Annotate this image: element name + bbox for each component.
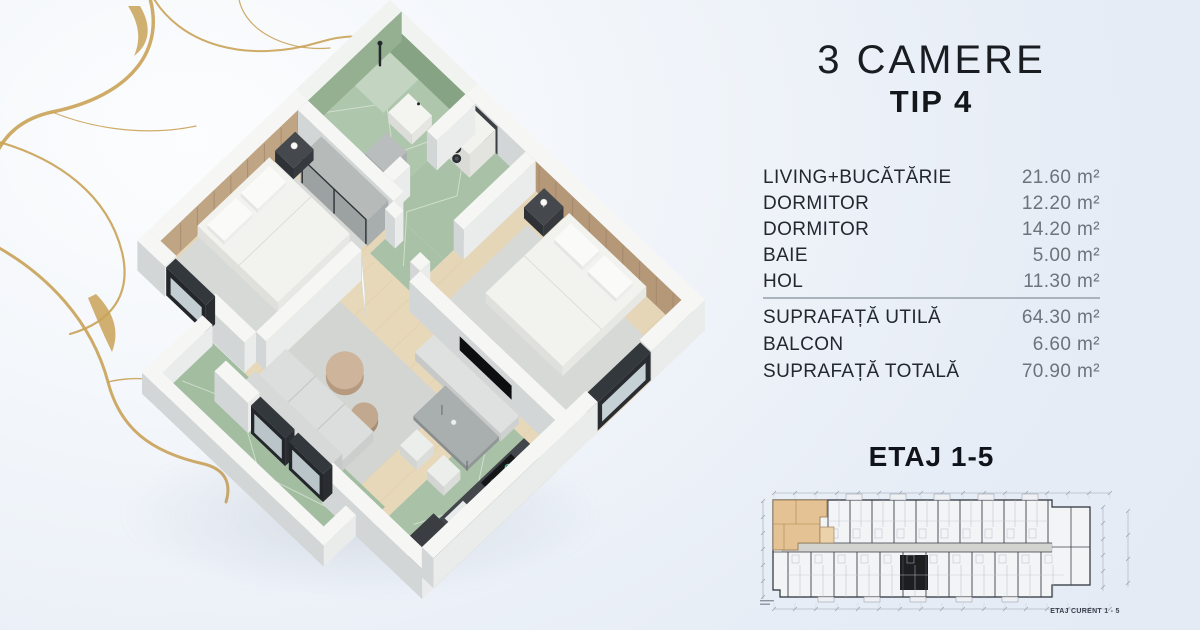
room-row: DORMITOR12.20 m² [763, 193, 1100, 219]
room-area-value: 11.30 m² [1023, 271, 1100, 293]
room-label: DORMITOR [763, 219, 869, 241]
total-area-value: 64.30 m² [1022, 307, 1100, 329]
room-row: DORMITOR14.20 m² [763, 219, 1100, 245]
total-area-value: 6.60 m² [1033, 334, 1100, 356]
total-label: SUPRAFAȚĂ UTILĂ [763, 307, 941, 329]
total-row: SUPRAFAȚĂ TOTALĂ70.90 m² [763, 361, 1100, 388]
room-row: HOL11.30 m² [763, 271, 1100, 297]
page-subtitle: TIP 4 [763, 84, 1100, 120]
floor-plan-caption: ETAJ CURENT 1 - 5 [1050, 608, 1120, 615]
room-area-value: 5.00 m² [1033, 245, 1100, 267]
room-area-value: 14.20 m² [1022, 219, 1100, 241]
room-label: LIVING+BUCĂTĂRIE [763, 167, 952, 189]
room-label: HOL [763, 271, 803, 293]
room-row: LIVING+BUCĂTĂRIE21.60 m² [763, 167, 1100, 193]
total-row: BALCON6.60 m² [763, 334, 1100, 361]
totals-list: SUPRAFAȚĂ UTILĂ64.30 m² BALCON6.60 m² SU… [763, 307, 1100, 388]
room-row: BAIE5.00 m² [763, 245, 1100, 271]
total-label: BALCON [763, 334, 844, 356]
page: 3 CAMERE TIP 4 LIVING+BUCĂTĂRIE21.60 m² … [0, 0, 1200, 630]
room-area-value: 21.60 m² [1022, 167, 1100, 189]
total-row: SUPRAFAȚĂ UTILĂ64.30 m² [763, 307, 1100, 334]
page-title: 3 CAMERE [763, 38, 1100, 83]
total-area-value: 70.90 m² [1022, 361, 1100, 383]
divider-line [763, 297, 1100, 299]
total-label: SUPRAFAȚĂ TOTALĂ [763, 361, 959, 383]
room-areas-list: LIVING+BUCĂTĂRIE21.60 m² DORMITOR12.20 m… [763, 167, 1100, 297]
room-area-value: 12.20 m² [1022, 193, 1100, 215]
building-floor-plan: ETAJ CURENT 1 - 5 [758, 487, 1142, 615]
room-label: BAIE [763, 245, 808, 267]
room-label: DORMITOR [763, 193, 869, 215]
floor-range-heading: ETAJ 1-5 [763, 441, 1100, 473]
apartment-3d-floorplan [0, 0, 740, 630]
